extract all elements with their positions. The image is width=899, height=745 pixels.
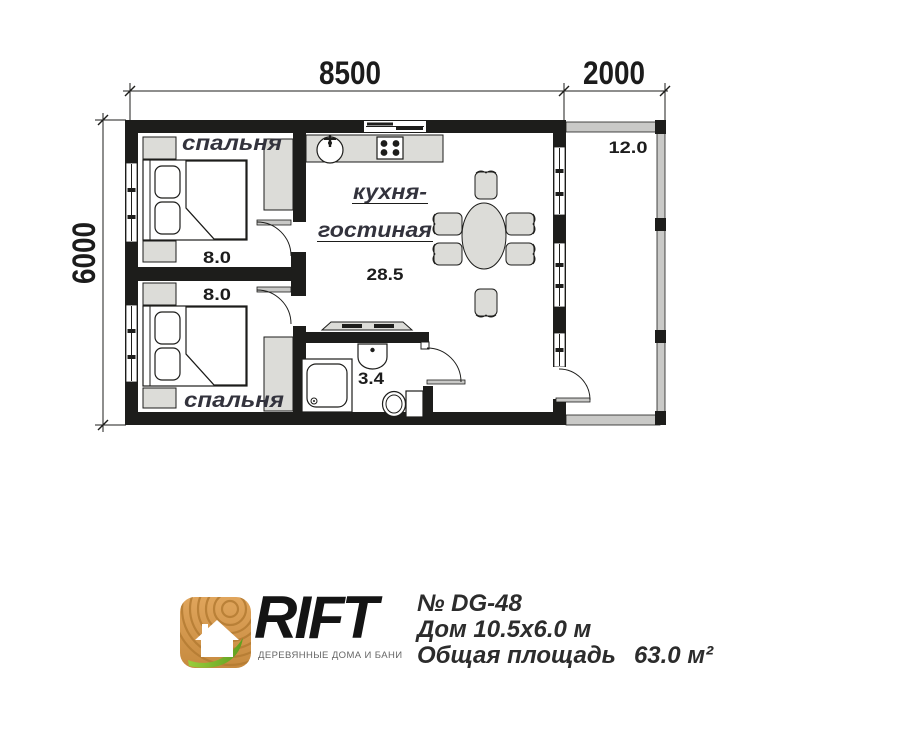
kitchen (306, 135, 443, 163)
kitchen-window (364, 121, 426, 132)
total-area-label: Общая площадь (417, 643, 616, 669)
nightstand (143, 137, 176, 159)
project-info: № DG-48 Дом 10.5x6.0 м Общая площадь 63.… (417, 591, 713, 669)
nightstand (143, 283, 176, 305)
bedroom-top-label: спальня (182, 132, 282, 155)
chair (506, 243, 535, 265)
bedroom-bottom-door (257, 287, 291, 324)
shower-tray (302, 359, 352, 412)
nightstand (143, 241, 176, 262)
living-room-window-2 (554, 243, 565, 307)
bedroom-top-window (126, 163, 137, 242)
stove-icon (377, 137, 403, 159)
bedroom-top-door (257, 220, 291, 256)
brand-tagline: ДЕРЕВЯННЫЕ ДОМА И БАНИ (258, 650, 402, 661)
kitchen-living-area: 28.5 (367, 265, 404, 284)
bathroom-door (427, 348, 465, 384)
dimension-left: 6000 (66, 113, 126, 432)
kitchen-living-labels: кухня- гостиная 28.5 (317, 181, 433, 284)
double-bed (143, 160, 247, 240)
footer: RIFT ДЕРЕВЯННЫЕ ДОМА И БАНИ № DG-48 Дом … (0, 590, 899, 690)
dimension-height: 6000 (66, 222, 102, 284)
dining-set (433, 171, 535, 317)
chair (433, 243, 462, 265)
floor-plan-page: 8500 2000 6000 (0, 0, 899, 745)
bedroom-bottom: 8.0 спальня (143, 283, 293, 412)
terrace-area-label: 12.0 (609, 138, 648, 157)
tv-cabinet (322, 322, 412, 330)
bedroom-bottom-area: 8.0 (203, 285, 231, 304)
chair (433, 213, 462, 235)
nightstand (143, 388, 176, 408)
bedroom-top-area: 8.0 (203, 248, 231, 267)
dimension-width-terrace: 2000 (583, 55, 645, 91)
kitchen-living-label-line2: гостиная (318, 219, 432, 242)
terrace: 12.0 (566, 120, 666, 425)
bedroom-top: спальня 8.0 (143, 132, 293, 267)
bedroom-bottom-window (126, 305, 137, 382)
double-bed (143, 306, 247, 386)
chair (475, 289, 497, 317)
living-room-window-3 (554, 333, 565, 367)
kitchen-living-label-line1: кухня- (353, 181, 427, 204)
total-area-value: 63.0 м² (634, 643, 713, 669)
bathroom-area: 3.4 (358, 369, 385, 388)
bedroom-bottom-label: спальня (184, 389, 284, 412)
project-number: № DG-48 (417, 591, 713, 617)
dimension-width-main: 8500 (319, 55, 381, 91)
washbasin (358, 344, 387, 369)
living-room-window-1 (554, 147, 565, 215)
brand-name: RIFT (254, 588, 375, 648)
bathroom: 3.4 (302, 344, 423, 417)
floor-plan-drawing: 8500 2000 6000 (0, 0, 899, 540)
dining-table (462, 203, 506, 269)
chair (506, 213, 535, 235)
chair (475, 171, 497, 199)
dimension-top: 8500 2000 (123, 55, 670, 120)
house-size: Дом 10.5x6.0 м (417, 617, 713, 643)
terrace-door-opening (552, 367, 567, 399)
rift-logo (180, 597, 251, 668)
